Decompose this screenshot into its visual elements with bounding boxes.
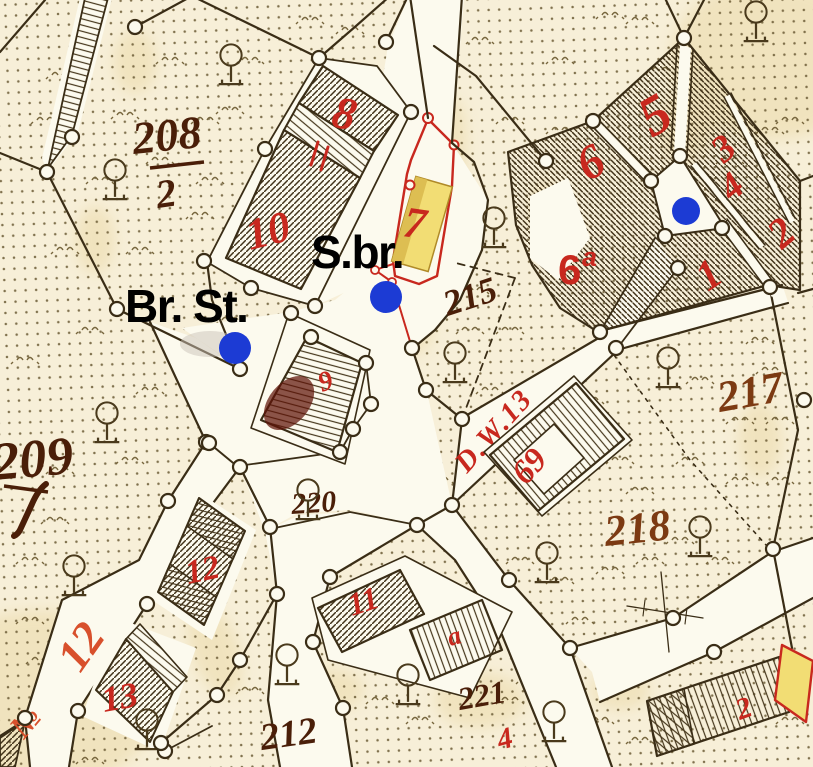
svg-text:13: 13 [98, 674, 140, 720]
svg-text:212: 212 [256, 709, 319, 759]
svg-text:209: 209 [0, 425, 76, 492]
svg-text:S.br.: S.br. [311, 226, 403, 278]
svg-text:a: a [582, 242, 597, 272]
svg-text:6: 6 [558, 246, 581, 293]
svg-text:208: 208 [129, 106, 204, 164]
svg-text:Br. St.: Br. St. [125, 280, 247, 332]
svg-text:218: 218 [601, 500, 673, 556]
